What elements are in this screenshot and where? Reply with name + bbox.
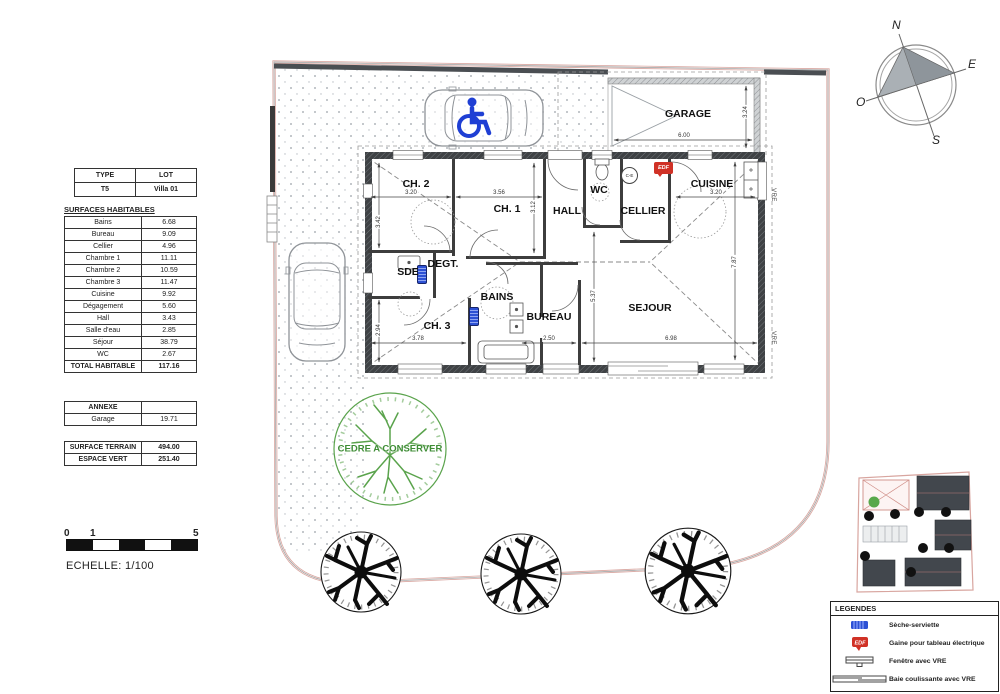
sliding-bay-icon: [831, 673, 889, 685]
lot-header: LOT: [136, 169, 197, 183]
compass-rose: N E O S: [856, 6, 980, 146]
annexe-header-empty: [142, 402, 197, 414]
table-row: Hall3.43: [65, 313, 197, 325]
legend-item: Sèche-serviette: [831, 616, 998, 634]
table-row: SURFACE TERRAIN494.00: [65, 442, 197, 454]
table-row: Cellier4.96: [65, 241, 197, 253]
boundary-trees: [321, 528, 731, 614]
table-row: Garage19.71: [65, 414, 197, 426]
table-row: Chambre 111.11: [65, 253, 197, 265]
table-row: Chambre 311.47: [65, 277, 197, 289]
annexe-header: ANNEXE: [65, 402, 142, 414]
type-value: T5: [75, 183, 136, 197]
table-row: WC2.67: [65, 349, 197, 361]
total-label: TOTAL HABITABLE: [65, 361, 142, 373]
legend-item: EDF Gaine pour tableau électrique: [831, 634, 998, 652]
compass-e: E: [968, 57, 977, 71]
table-row: Séjour38.79: [65, 337, 197, 349]
scale-caption: ECHELLE: 1/100: [66, 560, 154, 572]
legend-title: LEGENDES: [831, 602, 998, 616]
type-lot-table: TYPE LOT T5 Villa 01: [74, 168, 197, 197]
annexe-table: ANNEXE Garage19.71: [64, 401, 197, 426]
svg-text:EDF: EDF: [855, 640, 867, 646]
edf-duct-icon: EDF: [831, 636, 889, 651]
car-visitor: [286, 243, 348, 361]
table-row: Chambre 210.59: [65, 265, 197, 277]
total-value: 117.16: [142, 361, 197, 373]
terrain-table: SURFACE TERRAIN494.00ESPACE VERT251.40: [64, 441, 197, 466]
table-row: Dégagement5.60: [65, 301, 197, 313]
table-row: ESPACE VERT251.40: [65, 454, 197, 466]
legend-box: LEGENDES Sèche-serviette EDF Gaine pour …: [830, 601, 999, 692]
scale-tick-1: 1: [90, 528, 96, 539]
table-row: Salle d'eau2.85: [65, 325, 197, 337]
legend-item: Baie coulissante avec VRE: [831, 670, 998, 688]
scale-bar-segments: [66, 539, 198, 551]
table-row: Bureau9.09: [65, 229, 197, 241]
scale-bar: 0 1 5: [66, 528, 198, 551]
compass-n: N: [892, 18, 901, 32]
surfaces-table: Bains6.68Bureau9.09Cellier4.96Chambre 11…: [64, 216, 197, 373]
site-plan-sheet: N E O S TYPE LOT T5 Villa 01 SURFACES HA…: [0, 0, 1000, 694]
type-header: TYPE: [75, 169, 136, 183]
compass-s: S: [932, 133, 940, 146]
lot-value: Villa 01: [136, 183, 197, 197]
table-row: Cuisine9.92: [65, 289, 197, 301]
key-plan-inset: [857, 472, 973, 592]
surfaces-title: SURFACES HABITABLES: [64, 205, 155, 214]
compass-o: O: [856, 95, 865, 109]
car-accessible-parking: [425, 87, 543, 149]
towel-dryer-icon: [831, 619, 889, 631]
legend-item: Fenêtre avec VRE: [831, 652, 998, 670]
window-icon: [831, 654, 889, 668]
scale-tick-0: 0: [64, 528, 70, 539]
table-row: Bains6.68: [65, 217, 197, 229]
scale-tick-5: 5: [193, 528, 199, 539]
